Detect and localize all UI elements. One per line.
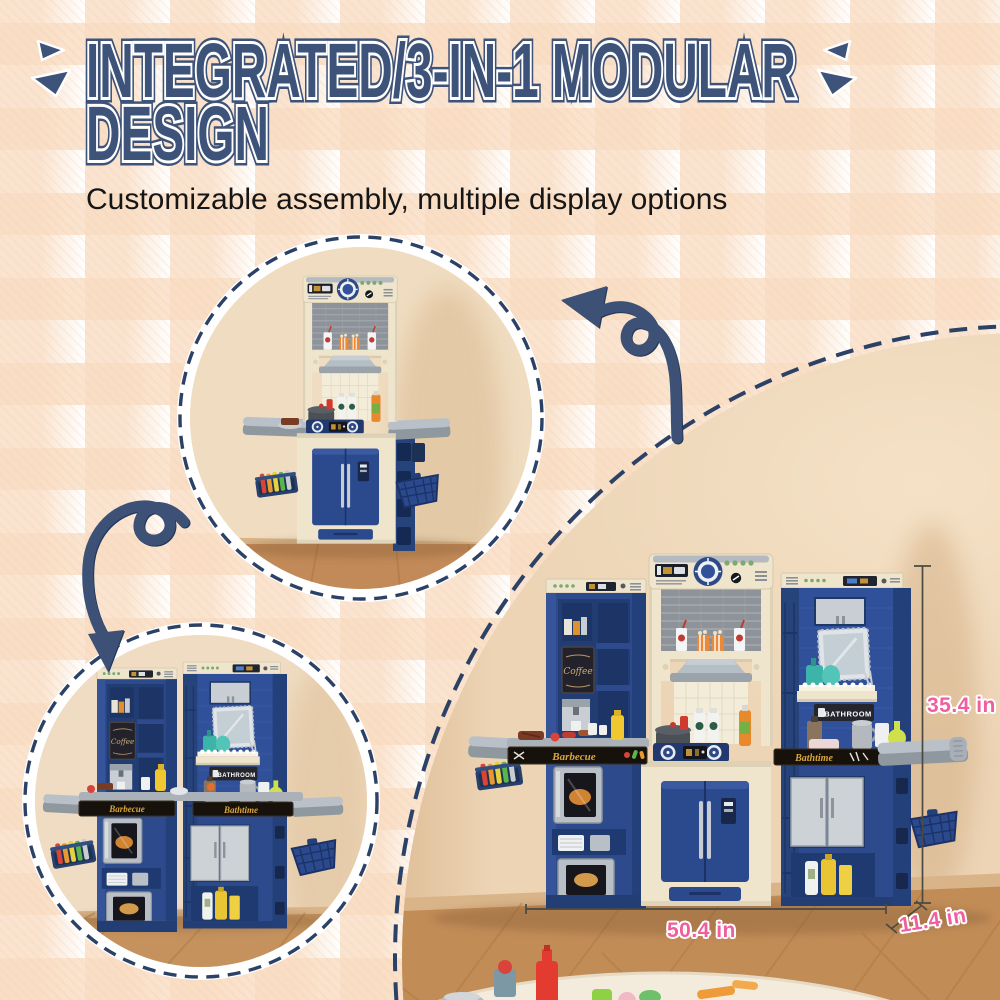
title-text: INTEGRATED/3-IN-1 MODULARDESIGN bbox=[86, 40, 796, 166]
barbecue-band-label: Barbecue bbox=[551, 751, 596, 763]
subtitle: Customizable assembly, multiple display … bbox=[86, 183, 727, 217]
product-infographic: INTEGRATED/3-IN-1 MODULARDESIGN INTEGRAT… bbox=[0, 0, 1000, 1000]
bathtime-band-small: Bathtime bbox=[193, 802, 293, 816]
single-tower-photo-circle bbox=[177, 234, 545, 602]
width-dimension-label: 50.4 in bbox=[667, 919, 736, 943]
barbecue-band-label: Barbecue bbox=[108, 804, 145, 814]
title-decoration-left-icon bbox=[26, 38, 82, 102]
single-tower-photo bbox=[190, 247, 532, 589]
bathtime-band: Bathtime bbox=[774, 749, 882, 765]
barbecue-band: Barbecue bbox=[508, 747, 647, 764]
height-dimension-label: 35.4 in bbox=[927, 694, 996, 718]
bathtime-band-label: Bathtime bbox=[794, 753, 833, 764]
twin-tower-photo: Barbecue Bathtime bbox=[35, 635, 367, 967]
twin-tower-illustration: Barbecue Bathtime bbox=[35, 635, 367, 967]
swirl-arrow-down-icon bbox=[58, 492, 208, 677]
page-title: INTEGRATED/3-IN-1 MODULARDESIGN INTEGRAT… bbox=[86, 40, 816, 190]
bathtime-band-label: Bathtime bbox=[223, 805, 258, 815]
swirl-arrow-up-icon bbox=[545, 272, 715, 447]
barbecue-band-small: Barbecue bbox=[79, 801, 175, 816]
single-tower-illustration bbox=[190, 247, 532, 589]
